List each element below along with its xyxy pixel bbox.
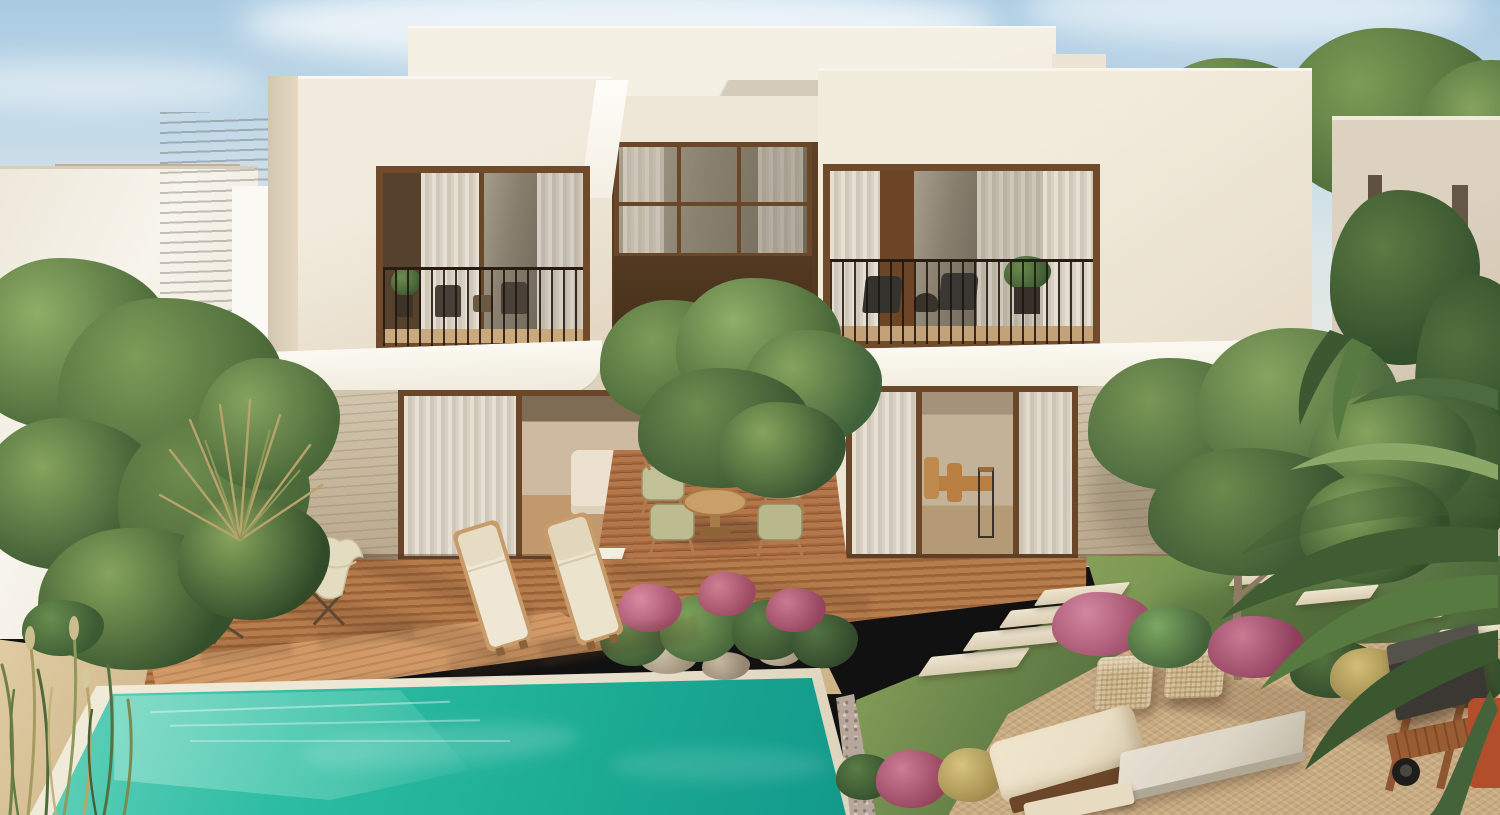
villa-rendering xyxy=(0,0,1500,815)
window-curtain xyxy=(758,147,803,253)
window-mullion xyxy=(677,147,681,253)
window-mullion xyxy=(737,147,741,253)
sliding-door-right xyxy=(846,386,1078,560)
dining-chair xyxy=(758,504,802,556)
dining-room-interior xyxy=(918,392,1015,554)
door-stile xyxy=(1013,392,1019,554)
door-curtain xyxy=(1015,392,1072,554)
dry-spiky-plant xyxy=(150,390,330,550)
palm-fronds xyxy=(1100,330,1500,815)
left-balcony xyxy=(376,166,590,350)
door-stile xyxy=(916,392,922,554)
dining-chair xyxy=(924,457,939,499)
water-highlight xyxy=(610,748,830,782)
courtyard-window xyxy=(614,142,812,258)
dining-chair xyxy=(947,463,962,502)
bar-stool xyxy=(978,467,994,539)
window-rail xyxy=(619,202,807,206)
balcony-railing xyxy=(383,267,583,347)
right-balcony xyxy=(823,164,1100,348)
window-curtain xyxy=(623,147,664,253)
tall-grasses xyxy=(0,560,240,815)
sun-lounger xyxy=(542,511,627,653)
balcony-railing xyxy=(830,259,1093,344)
sun-lounger xyxy=(452,519,536,659)
